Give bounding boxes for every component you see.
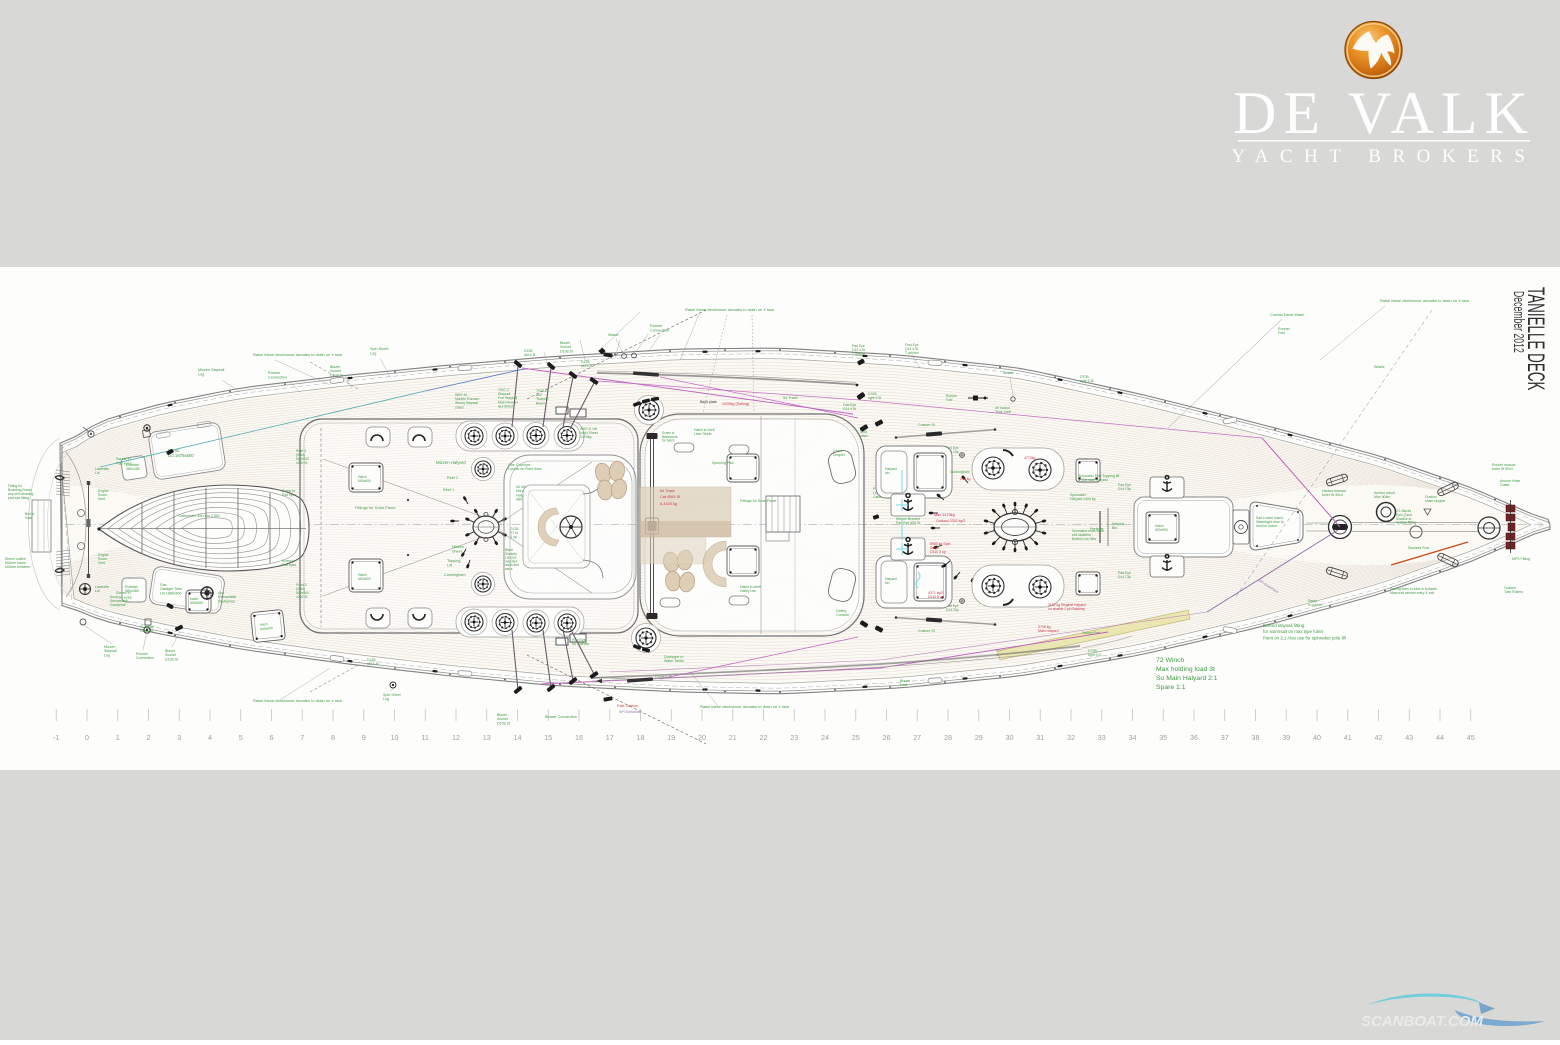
- svg-text:1: 1: [116, 733, 120, 742]
- svg-text:44: 44: [1436, 733, 1444, 742]
- svg-text:Outhaul 2352 kg/2: Outhaul 2352 kg/2: [936, 519, 965, 523]
- svg-text:Screw toPad eyes: Screw toPad eyes: [282, 559, 296, 567]
- svg-text:SCANBOAT.COM: SCANBOAT.COM: [1361, 1013, 1483, 1030]
- svg-text:31: 31: [1036, 733, 1044, 742]
- svg-text:SPI Downhaul: SPI Downhaul: [619, 710, 642, 714]
- svg-text:YACHT BROKERS: YACHT BROKERS: [1232, 146, 1537, 167]
- svg-text:26: 26: [883, 733, 891, 742]
- svg-text:28: 28: [944, 733, 952, 742]
- svg-text:24: 24: [821, 733, 829, 742]
- svg-text:Cat 4500-St: Cat 4500-St: [660, 495, 681, 499]
- svg-text:42: 42: [1375, 733, 1383, 742]
- svg-text:Waste: Waste: [1003, 371, 1014, 375]
- svg-text:Drainpipe toWater Tanks: Drainpipe toWater Tanks: [664, 655, 684, 663]
- svg-text:45: 45: [1467, 733, 1475, 742]
- svg-text:Cunningham: Cunningham: [950, 470, 970, 474]
- svg-text:Combo Deck Wash: Combo Deck Wash: [1270, 312, 1304, 317]
- svg-text:Raise these deckhouse dorades: Raise these deckhouse dorades to drain o…: [700, 704, 789, 709]
- svg-text:3: 3: [177, 733, 181, 742]
- svg-text:Pad EyeD14 4.5tT anchor: Pad EyeD14 4.5tT anchor: [852, 344, 866, 356]
- svg-text:Waste: Waste: [1374, 365, 1385, 369]
- svg-text:29: 29: [975, 733, 983, 742]
- svg-text:264 kg: 264 kg: [960, 477, 971, 481]
- svg-text:1200kg (Sailing): 1200kg (Sailing): [722, 402, 750, 406]
- svg-text:Max 1470kg: Max 1470kg: [934, 513, 955, 517]
- svg-text:Reef 2: Reef 2: [447, 476, 458, 480]
- svg-text:54 Track: 54 Track: [783, 396, 798, 400]
- svg-text:Furling lines in tube in bulwa: Furling lines in tube in bulwarkMast exi…: [1390, 587, 1437, 595]
- svg-text:33: 33: [1098, 733, 1106, 742]
- svg-text:41: 41: [1344, 733, 1352, 742]
- svg-text:Raise these deckhouse dorades: Raise these deckhouse dorades to drain o…: [1380, 298, 1469, 303]
- svg-text:32: 32: [1067, 733, 1075, 742]
- svg-text:Harkus manualfurler St 90x4: Harkus manualfurler St 90x4: [1322, 489, 1346, 497]
- svg-text:6: 6: [270, 733, 274, 742]
- svg-text:27: 27: [913, 733, 921, 742]
- svg-text:Siamees Post: Siamees Post: [1408, 546, 1429, 550]
- svg-text:34: 34: [1129, 733, 1137, 742]
- svg-text:2: 2: [147, 733, 151, 742]
- svg-text:35: 35: [1159, 733, 1167, 742]
- svg-text:30: 30: [1006, 733, 1014, 742]
- svg-text:-1: -1: [53, 733, 59, 742]
- svg-text:Spinning Pad: Spinning Pad: [712, 461, 733, 465]
- svg-text:Fwd EyeD14 4.5t: Fwd EyeD14 4.5t: [843, 403, 856, 411]
- svg-text:25: 25: [852, 733, 860, 742]
- svg-text:Raise these deckhouse dorades: Raise these deckhouse dorades to drain o…: [685, 307, 774, 312]
- svg-text:Raise these deckhouse dorades: Raise these deckhouse dorades to drain o…: [253, 352, 342, 357]
- svg-text:40: 40: [1313, 733, 1321, 742]
- svg-text:Mizzen Halyard: Mizzen Halyard: [436, 460, 466, 465]
- svg-text:Gallivanter 450-6m 2.5M: Gallivanter 450-6m 2.5M: [178, 514, 220, 518]
- svg-text:Fwd EyeD14 4.5tT anchor: Fwd EyeD14 4.5tT anchor: [905, 343, 920, 355]
- svg-text:84 Track: 84 Track: [660, 489, 675, 493]
- svg-text:December 2012: December 2012: [1510, 291, 1527, 353]
- svg-text:15: 15: [544, 733, 552, 742]
- svg-text:12: 12: [452, 733, 460, 742]
- svg-text:Blower Connection: Blower Connection: [545, 715, 577, 719]
- svg-text:16: 16: [575, 733, 583, 742]
- svg-text:Screw toPad eyes: Screw toPad eyes: [282, 489, 296, 497]
- svg-text:21: 21: [729, 733, 737, 742]
- svg-text:17: 17: [606, 733, 614, 742]
- svg-text:19: 19: [667, 733, 675, 742]
- svg-text:23: 23: [790, 733, 798, 742]
- svg-text:18: 18: [637, 733, 645, 742]
- svg-text:5: 5: [239, 733, 243, 742]
- svg-text:Reef 1: Reef 1: [443, 488, 454, 492]
- svg-text:14: 14: [514, 733, 522, 742]
- svg-text:Deckprism: Deckprism: [860, 430, 868, 438]
- svg-text:DE VALK: DE VALK: [1233, 80, 1535, 146]
- svg-text:Fittings for Solar Panel: Fittings for Solar Panel: [740, 499, 777, 503]
- svg-text:Cunningham: Cunningham: [444, 573, 466, 577]
- svg-text:0: 0: [85, 733, 89, 742]
- svg-text:37: 37: [1221, 733, 1229, 742]
- svg-text:8: 8: [331, 733, 335, 742]
- svg-text:7: 7: [300, 733, 304, 742]
- svg-text:Custom St: Custom St: [918, 423, 935, 427]
- svg-text:Pad EyeD14 Clip: Pad EyeD14 Clip: [1118, 571, 1131, 579]
- svg-text:4770kg: 4770kg: [1024, 456, 1036, 460]
- svg-text:22: 22: [760, 733, 768, 742]
- svg-text:Raise these deckhouse dorades: Raise these deckhouse dorades to drain o…: [253, 698, 342, 703]
- svg-text:20: 20: [698, 733, 706, 742]
- svg-text:3192 kg Singinst Halyardon sh: 3192 kg Singinst Halyardon shatkik 2 pin…: [1048, 603, 1086, 611]
- svg-text:Fittings for Solar Panel: Fittings for Solar Panel: [355, 505, 396, 510]
- svg-text:Mizzen BracketPad Eye 65# St: Mizzen BracketPad Eye 65# St: [896, 517, 920, 525]
- svg-text:Rocket manualfurler St 90x4: Rocket manualfurler St 90x4: [1492, 463, 1516, 471]
- svg-text:11: 11: [421, 733, 428, 742]
- svg-text:43: 43: [1405, 733, 1413, 742]
- svg-text:Custom St: Custom St: [918, 629, 935, 633]
- svg-text:9: 9: [362, 733, 366, 742]
- svg-text:Back plate: Back plate: [700, 400, 717, 404]
- svg-text:4371 kg/2D110 8 up: 4371 kg/2D110 8 up: [928, 591, 944, 599]
- svg-text:10: 10: [391, 733, 399, 742]
- svg-text:Fast Carbon: Fast Carbon: [617, 704, 638, 708]
- svg-text:38: 38: [1252, 733, 1260, 742]
- svg-text:RudstockGate 3/8: RudstockGate 3/8: [140, 625, 154, 633]
- svg-text:4: 4: [208, 733, 212, 742]
- svg-text:MPS Fitting: MPS Fitting: [1512, 557, 1530, 561]
- svg-text:A 4420 kg: A 4420 kg: [660, 502, 677, 506]
- svg-text:Pad EyeD14 Clip: Pad EyeD14 Clip: [1118, 483, 1131, 491]
- svg-text:13: 13: [483, 733, 491, 742]
- svg-text:36: 36: [1190, 733, 1198, 742]
- svg-text:39: 39: [1282, 733, 1290, 742]
